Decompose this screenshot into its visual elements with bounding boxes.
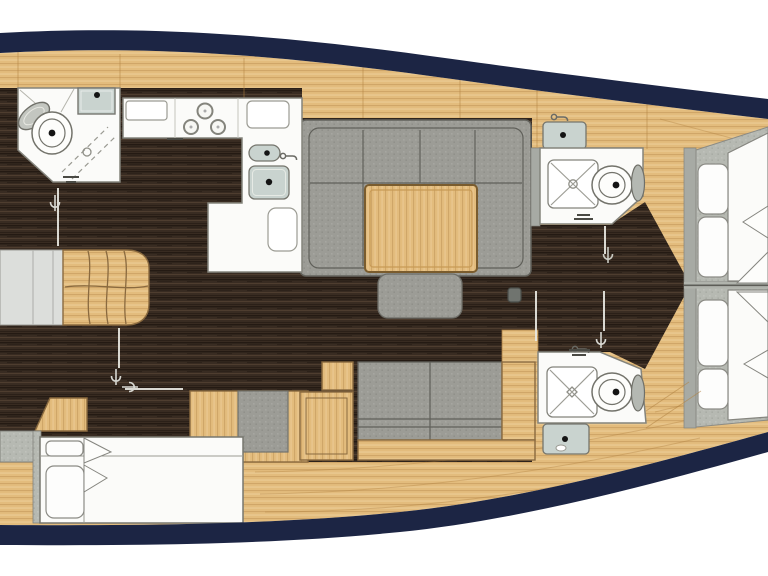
vanity-sink: [78, 88, 115, 114]
toilet-icon: [592, 373, 632, 411]
settee: [300, 362, 535, 460]
settee-cabinet: [300, 392, 353, 460]
ottoman: [378, 274, 462, 318]
vberth-pillow: [698, 217, 728, 277]
bulkhead-strip: [531, 148, 540, 226]
yacht-floor-plan: [0, 0, 768, 576]
aft-seat-cushion: [238, 391, 288, 452]
galley-locker: [126, 101, 167, 120]
aft-berth-pillow-large: [46, 466, 84, 518]
bow-cabin: [684, 127, 768, 428]
saloon-table: [365, 185, 477, 272]
galley-locker: [268, 208, 297, 251]
galley-locker: [247, 101, 289, 128]
settee-trim-right: [502, 362, 535, 440]
aft-head-fore-deck: [502, 330, 538, 362]
vberth-pillow: [698, 369, 728, 409]
settee-base: [358, 440, 535, 460]
companionway: [0, 250, 149, 325]
toilet-icon: [592, 166, 632, 204]
vberth-pillow: [698, 164, 728, 214]
aft-berth-pillow-small: [46, 441, 83, 456]
deck-hatch: [508, 288, 521, 302]
floor-plan-canvas: [0, 0, 768, 576]
settee-trim-left: [322, 362, 353, 390]
toilet-cistern: [632, 165, 645, 201]
vberth-pillow: [698, 300, 728, 366]
toilet-cistern: [632, 375, 645, 411]
